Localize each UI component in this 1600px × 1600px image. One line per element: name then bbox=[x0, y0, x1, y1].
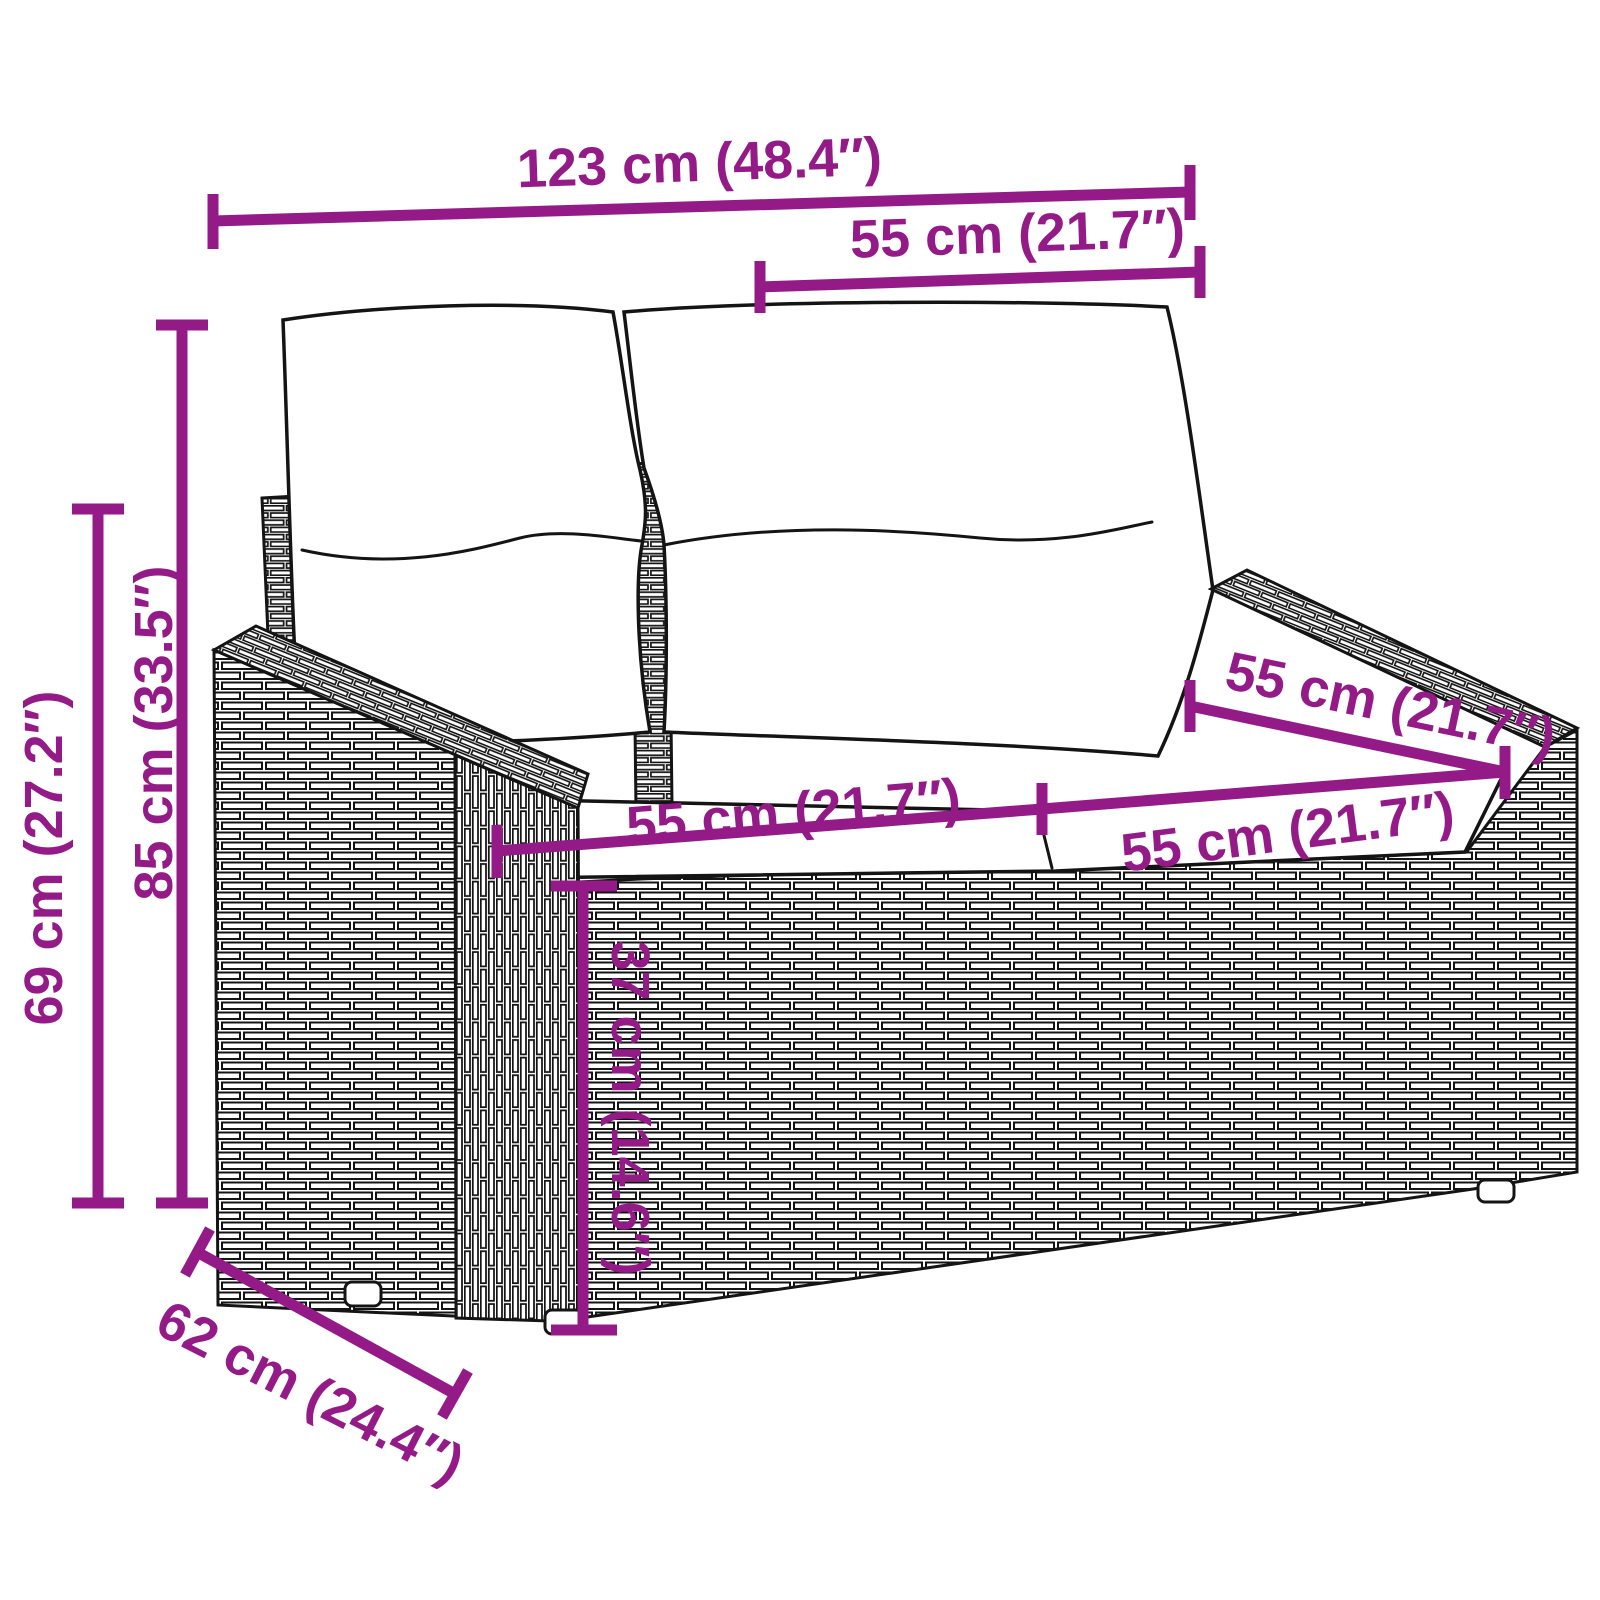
dim-back-cushion-width-line bbox=[760, 272, 1200, 287]
dim-seat-height-label: 37 cm (14.6″) bbox=[600, 940, 660, 1275]
dim-frame-back-height: 69 cm (27.2″) bbox=[14, 509, 124, 1203]
dim-back-cushion-width: 55 cm (21.7″) bbox=[760, 198, 1200, 313]
foot bbox=[345, 1282, 381, 1306]
dim-overall-width-label: 123 cm (48.4″) bbox=[516, 127, 883, 200]
foot bbox=[1478, 1180, 1514, 1202]
dim-overall-height-label: 85 cm (33.5″) bbox=[124, 565, 184, 900]
sofa-dimension-drawing: 123 cm (48.4″) 55 cm (21.7″) 85 cm (33.5… bbox=[0, 0, 1600, 1600]
dim-back-cushion-width-label: 55 cm (21.7″) bbox=[849, 198, 1186, 270]
dimension-diagram: 123 cm (48.4″) 55 cm (21.7″) 85 cm (33.5… bbox=[0, 0, 1600, 1600]
dim-overall-height: 85 cm (33.5″) bbox=[124, 325, 208, 1203]
dim-frame-back-height-label: 69 cm (27.2″) bbox=[14, 690, 74, 1025]
left-armrest-corner-post bbox=[455, 755, 580, 1322]
